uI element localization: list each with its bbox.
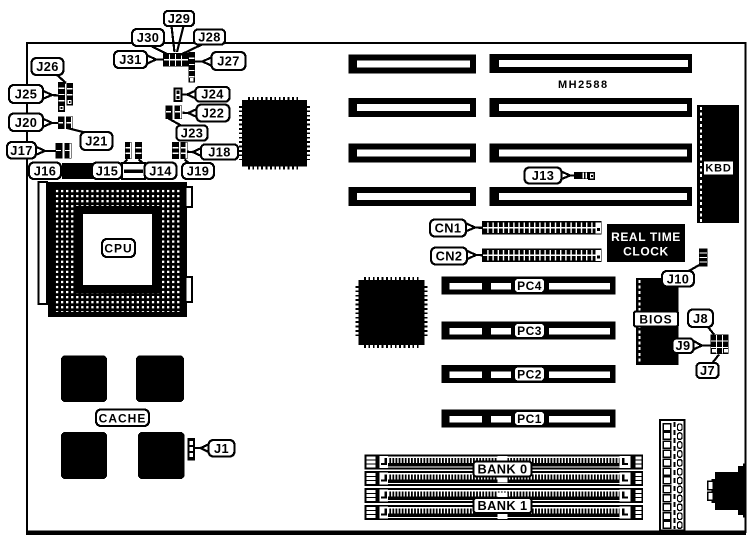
svg-text:PC4: PC4 <box>517 279 542 293</box>
svg-text:J31: J31 <box>119 52 142 67</box>
svg-text:J20: J20 <box>15 115 38 130</box>
svg-text:J28: J28 <box>198 30 221 45</box>
svg-text:J16: J16 <box>34 164 57 179</box>
svg-text:J18: J18 <box>208 145 231 160</box>
svg-text:J7: J7 <box>700 363 715 378</box>
svg-text:BANK 1: BANK 1 <box>477 498 527 513</box>
svg-text:J17: J17 <box>10 143 33 158</box>
svg-text:J29: J29 <box>168 11 191 26</box>
svg-text:J30: J30 <box>137 30 160 45</box>
svg-text:BIOS: BIOS <box>639 313 672 327</box>
svg-text:PC3: PC3 <box>517 324 542 338</box>
svg-text:MH2588: MH2588 <box>558 79 609 91</box>
svg-text:REAL TIME: REAL TIME <box>611 230 681 244</box>
svg-text:CN1: CN1 <box>435 221 462 236</box>
svg-text:J23: J23 <box>181 126 204 141</box>
svg-text:PC1: PC1 <box>517 412 542 426</box>
svg-text:J1: J1 <box>214 441 229 456</box>
svg-text:J15: J15 <box>96 164 119 179</box>
svg-text:PC2: PC2 <box>517 368 542 382</box>
svg-text:J8: J8 <box>693 311 708 326</box>
svg-text:J26: J26 <box>36 59 59 74</box>
svg-text:KBD: KBD <box>705 163 731 175</box>
svg-text:J9: J9 <box>675 338 690 353</box>
svg-text:J22: J22 <box>202 106 225 121</box>
svg-text:J10: J10 <box>667 272 690 287</box>
svg-text:CACHE: CACHE <box>99 412 147 426</box>
svg-text:J24: J24 <box>201 87 224 102</box>
svg-text:BANK 0: BANK 0 <box>477 462 527 477</box>
svg-text:J13: J13 <box>532 168 555 183</box>
svg-text:J19: J19 <box>187 164 210 179</box>
svg-text:J14: J14 <box>149 164 172 179</box>
svg-text:CPU: CPU <box>104 242 132 256</box>
svg-text:CN2: CN2 <box>436 249 463 264</box>
svg-text:J27: J27 <box>217 54 240 69</box>
svg-text:J21: J21 <box>85 134 108 149</box>
svg-text:CLOCK: CLOCK <box>623 245 669 259</box>
svg-text:J25: J25 <box>15 87 38 102</box>
